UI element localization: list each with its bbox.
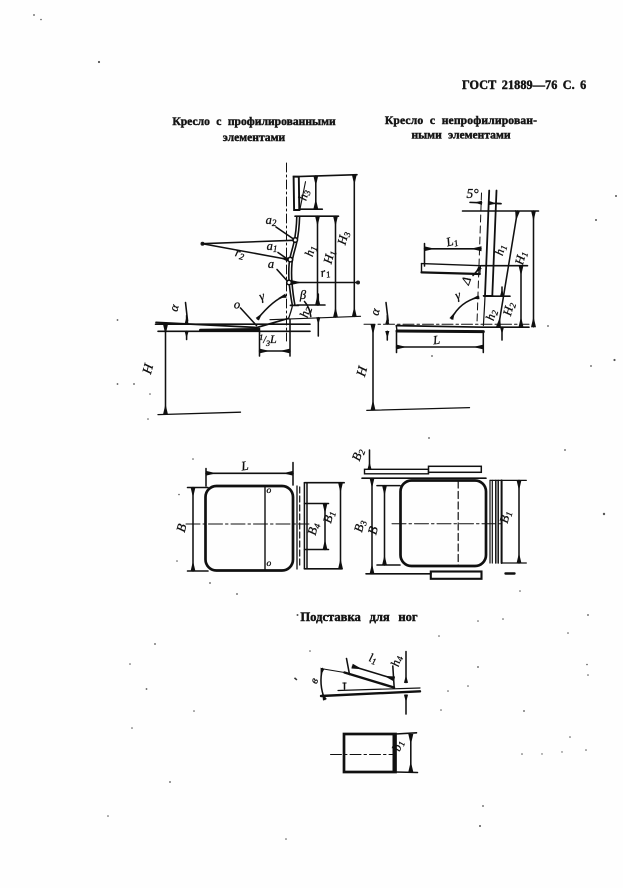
svg-text:l1: l1 [367,650,379,667]
svg-text:h2: h2 [483,307,500,322]
svg-text:B1: B1 [320,509,338,525]
svg-text:B1: B1 [497,509,515,525]
svg-text:h2: h2 [297,304,314,319]
svg-text:L: L [239,458,249,474]
svg-text:H1: H1 [512,250,530,268]
svg-text:ными элементами: ными элементами [411,129,510,142]
svg-text:α: α [368,307,383,317]
svg-text:в: в [308,677,321,686]
svg-text:r2: r2 [233,245,246,262]
svg-text:B2: B2 [349,446,367,463]
svg-text:α: α [167,303,182,313]
svg-text:γ: γ [453,287,463,302]
svg-text:Кресло с профилированными: Кресло с профилированными [172,115,336,128]
svg-text:o: o [267,486,272,496]
svg-text:Δ: Δ [458,275,474,288]
svg-text:L1: L1 [444,233,460,251]
svg-text:r1: r1 [319,264,331,281]
svg-text:a2: a2 [266,213,277,228]
svg-text:1/3L: 1/3L [259,332,277,348]
svg-text:b1: b1 [389,738,407,753]
svg-text:γ: γ [257,288,267,303]
svg-text:β: β [299,288,307,302]
svg-text:h4: h4 [388,653,405,668]
svg-text:h1: h1 [302,244,319,258]
svg-text:5°: 5° [467,186,480,201]
svg-text:H: H [353,363,371,378]
svg-text:a: a [268,257,274,271]
svg-text:H3: H3 [334,229,352,247]
svg-text:L: L [431,333,440,348]
svg-text:ГОСТ 21889—76 С. 6: ГОСТ 21889—76 С. 6 [462,78,586,92]
svg-text:H: H [139,361,157,376]
svg-text:o: o [267,559,272,569]
svg-text:Кресло с непрофилирован-: Кресло с непрофилирован- [385,114,537,127]
svg-text:Подставка для ног: Подставка для ног [300,610,418,624]
svg-text:o: o [234,298,240,312]
svg-text:B: B [364,525,381,537]
svg-text:элементами: элементами [223,131,286,144]
